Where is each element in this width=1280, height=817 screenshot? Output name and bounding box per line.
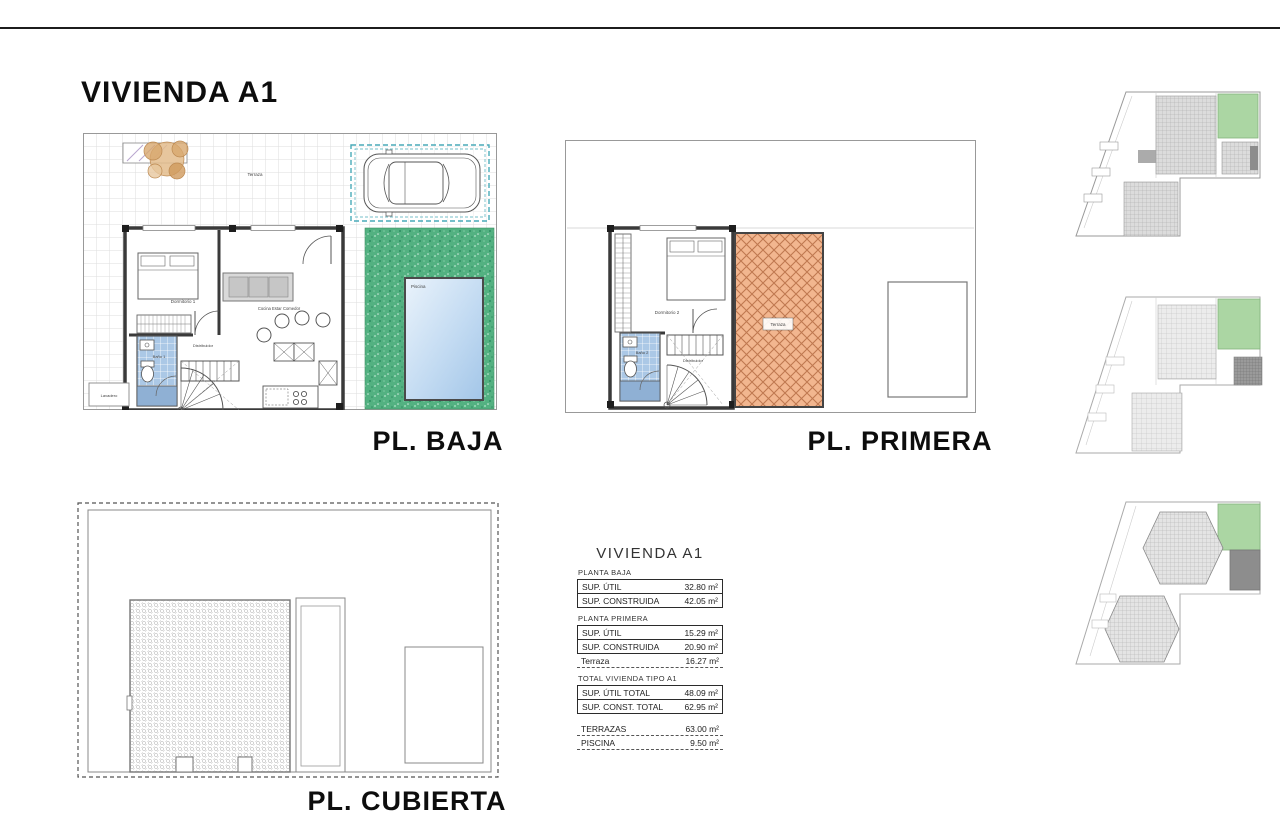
- row-label: SUP. CONSTRUIDA: [582, 642, 659, 652]
- row-label: SUP. CONSTRUIDA: [582, 596, 659, 606]
- sink: [623, 337, 637, 347]
- row-label: Terraza: [581, 656, 609, 666]
- row-value: 42.05 m²: [684, 596, 718, 606]
- row-label: SUP. ÚTIL: [582, 582, 622, 592]
- row-label: SUP. ÚTIL: [582, 628, 622, 638]
- roof-strip: [296, 598, 345, 772]
- row-value: 9.50 m²: [690, 738, 719, 748]
- label-pl-cubierta: PL. CUBIERTA: [277, 786, 537, 817]
- wardrobe: [615, 234, 631, 332]
- bathroom: Baño 1: [137, 336, 177, 406]
- window: [640, 226, 696, 231]
- primera-bano-label: Baño 2: [636, 350, 649, 355]
- roof-shape: [1105, 596, 1179, 662]
- table-title: VIVIENDA A1: [577, 545, 723, 562]
- label-pl-primera: PL. PRIMERA: [768, 426, 1032, 457]
- sheet-top-rule: [0, 27, 1280, 29]
- table-row: SUP. CONSTRUIDA 42.05 m²: [578, 593, 722, 607]
- plan-sheet: { "page": { "title": "VIVIENDA A1" }, "p…: [0, 0, 1280, 800]
- baja-salon-label: Cocina Estar Comedor: [258, 306, 301, 311]
- sofa: [223, 273, 293, 301]
- primera-house: Dormitorio 2 Baño 2 Distribuidor: [607, 225, 736, 408]
- row-value: 63.00 m²: [685, 724, 719, 734]
- baja-piscina-label: Piscina: [411, 284, 426, 289]
- tree-icon: [144, 141, 188, 179]
- roof-shape: [1143, 512, 1223, 584]
- row-value: 32.80 m²: [684, 582, 718, 592]
- wardrobe: [137, 315, 191, 333]
- plan-baja-drawing: Terraza Piscina: [83, 133, 497, 410]
- row-label: SUP. ÚTIL TOTAL: [582, 688, 650, 698]
- row-label: SUP. CONST. TOTAL: [582, 702, 663, 712]
- lavadero: Lavadero: [89, 383, 129, 406]
- table-row-terrazas: TERRAZAS 63.00 m²: [577, 722, 723, 736]
- baja-dormitorio-label: Dormitorio 1: [171, 299, 196, 304]
- table-row-piscina: PISCINA 9.50 m²: [577, 736, 723, 750]
- baja-distribuidor-label: Distribuidor: [193, 343, 214, 348]
- toilet: [142, 366, 154, 382]
- site-plan-ground: [1066, 86, 1266, 242]
- site-plan-roof: [1066, 498, 1266, 668]
- sink: [140, 340, 154, 350]
- primera-terraza-label: Terraza: [770, 322, 786, 327]
- bathroom: Baño 2: [620, 333, 660, 401]
- planta-baja-box: SUP. ÚTIL 32.80 m² SUP. CONSTRUIDA 42.05…: [577, 579, 723, 608]
- parking-space: [351, 145, 489, 221]
- toilet: [625, 361, 637, 377]
- pool: Piscina: [405, 278, 483, 400]
- terrace: Terraza: [735, 233, 823, 407]
- row-value: 20.90 m²: [684, 642, 718, 652]
- pool-outline: [405, 647, 483, 763]
- highlighted-unit: [1218, 94, 1258, 138]
- highlighted-unit: [1218, 299, 1260, 349]
- page-title: VIVIENDA A1: [81, 76, 278, 110]
- total-box: SUP. ÚTIL TOTAL 48.09 m² SUP. CONST. TOT…: [577, 685, 723, 714]
- row-label: PISCINA: [581, 738, 615, 748]
- row-value: 62.95 m²: [684, 702, 718, 712]
- label-pl-baja: PL. BAJA: [318, 426, 558, 457]
- shower-tray: [620, 381, 660, 401]
- window: [251, 226, 295, 231]
- row-value: 15.29 m²: [684, 628, 718, 638]
- roof-deck: [127, 600, 290, 772]
- table-row: SUP. CONSTRUIDA 20.90 m²: [578, 639, 722, 653]
- row-value: 16.27 m²: [685, 656, 719, 666]
- table-row: SUP. ÚTIL TOTAL 48.09 m²: [578, 686, 722, 699]
- baja-lavadero-label: Lavadero: [101, 393, 118, 398]
- table-row: SUP. ÚTIL 15.29 m²: [578, 626, 722, 639]
- table-row-terraza: Terraza 16.27 m²: [577, 654, 723, 668]
- site-plan-first: [1066, 293, 1266, 457]
- primera-distribuidor-label: Distribuidor: [683, 358, 704, 363]
- car-icon: [364, 150, 480, 216]
- baja-bano-label: Baño 1: [153, 354, 166, 359]
- table-row: SUP. ÚTIL 32.80 m²: [578, 580, 722, 593]
- bed: [667, 238, 725, 300]
- row-value: 48.09 m²: [684, 688, 718, 698]
- primera-dormitorio-label: Dormitorio 2: [655, 310, 680, 315]
- table-row: SUP. CONST. TOTAL 62.95 m²: [578, 699, 722, 713]
- planta-primera-box: SUP. ÚTIL 15.29 m² SUP. CONSTRUIDA 20.90…: [577, 625, 723, 654]
- section-planta-baja: PLANTA BAJA: [578, 568, 723, 577]
- area-table: VIVIENDA A1 PLANTA BAJA SUP. ÚTIL 32.80 …: [577, 545, 723, 750]
- section-total: TOTAL VIVIENDA TIPO A1: [578, 674, 723, 683]
- pool-void-outline: [888, 282, 967, 397]
- plan-primera-drawing: Dormitorio 2 Baño 2 Distribuidor: [565, 140, 976, 413]
- row-label: TERRAZAS: [581, 724, 626, 734]
- plan-cubierta-drawing: [75, 500, 501, 792]
- highlighted-unit: [1218, 504, 1260, 550]
- bed: [138, 253, 198, 299]
- baja-terraza-label: Terraza: [247, 172, 263, 177]
- window: [143, 226, 195, 231]
- section-planta-primera: PLANTA PRIMERA: [578, 614, 723, 623]
